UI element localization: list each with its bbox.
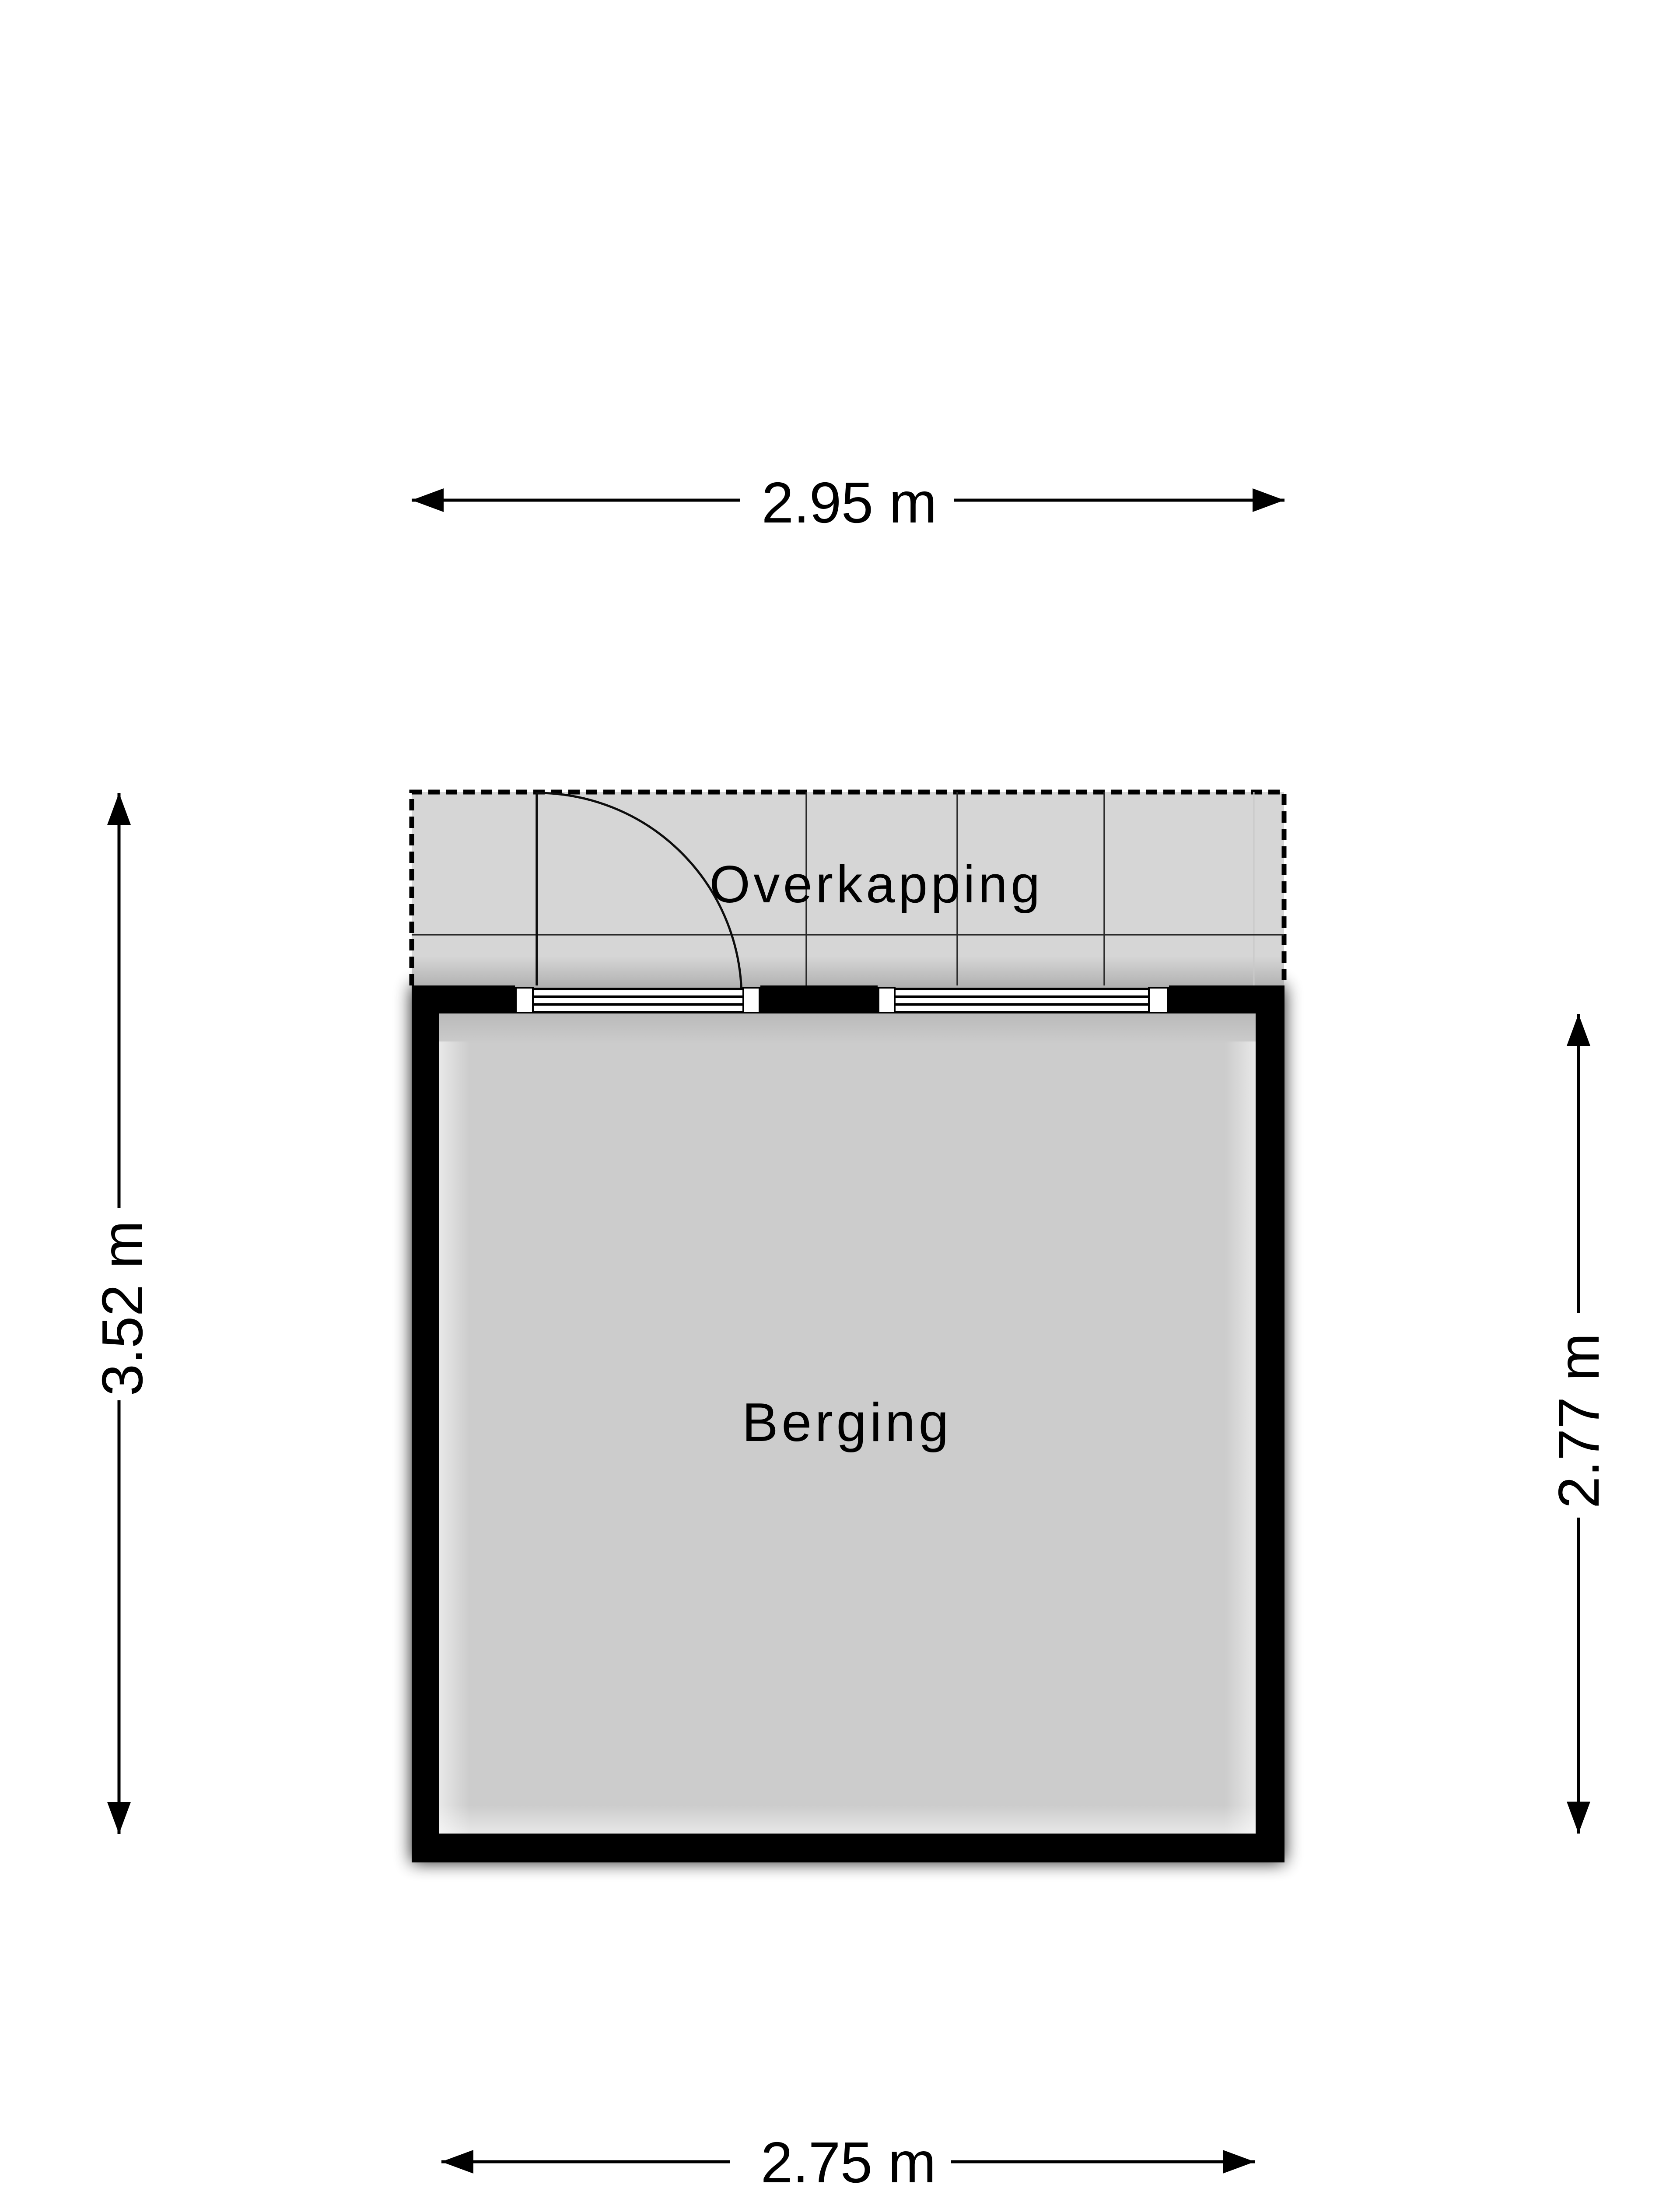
svg-text:2.77 m: 2.77 m bbox=[1547, 1333, 1611, 1509]
svg-text:3.52 m: 3.52 m bbox=[90, 1221, 154, 1396]
svg-text:2.75 m: 2.75 m bbox=[761, 2130, 936, 2188]
svg-text:Overkapping: Overkapping bbox=[710, 855, 1043, 914]
svg-text:2.95 m: 2.95 m bbox=[762, 470, 937, 535]
svg-text:Berging: Berging bbox=[742, 1392, 952, 1453]
